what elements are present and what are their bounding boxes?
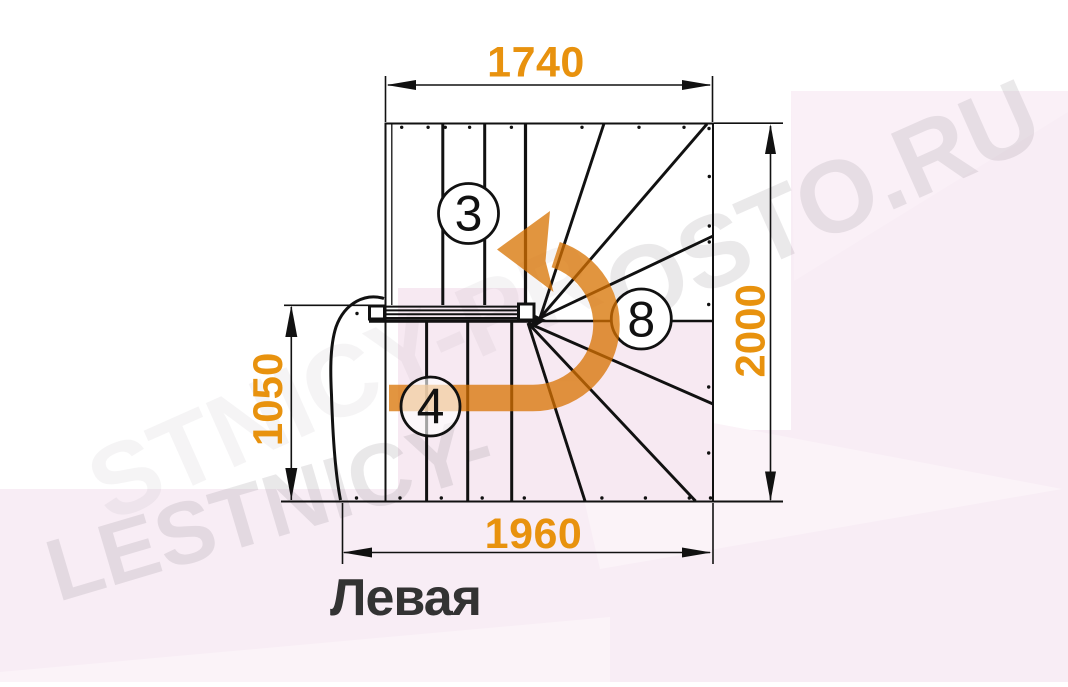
svg-text:4: 4 xyxy=(417,379,445,435)
svg-text:1960: 1960 xyxy=(485,510,583,558)
svg-text:2000: 2000 xyxy=(726,284,773,377)
svg-text:Левая: Левая xyxy=(330,569,481,627)
svg-text:1050: 1050 xyxy=(244,353,291,446)
svg-text:1740: 1740 xyxy=(487,39,585,87)
svg-text:8: 8 xyxy=(627,292,655,348)
svg-text:3: 3 xyxy=(455,186,483,242)
